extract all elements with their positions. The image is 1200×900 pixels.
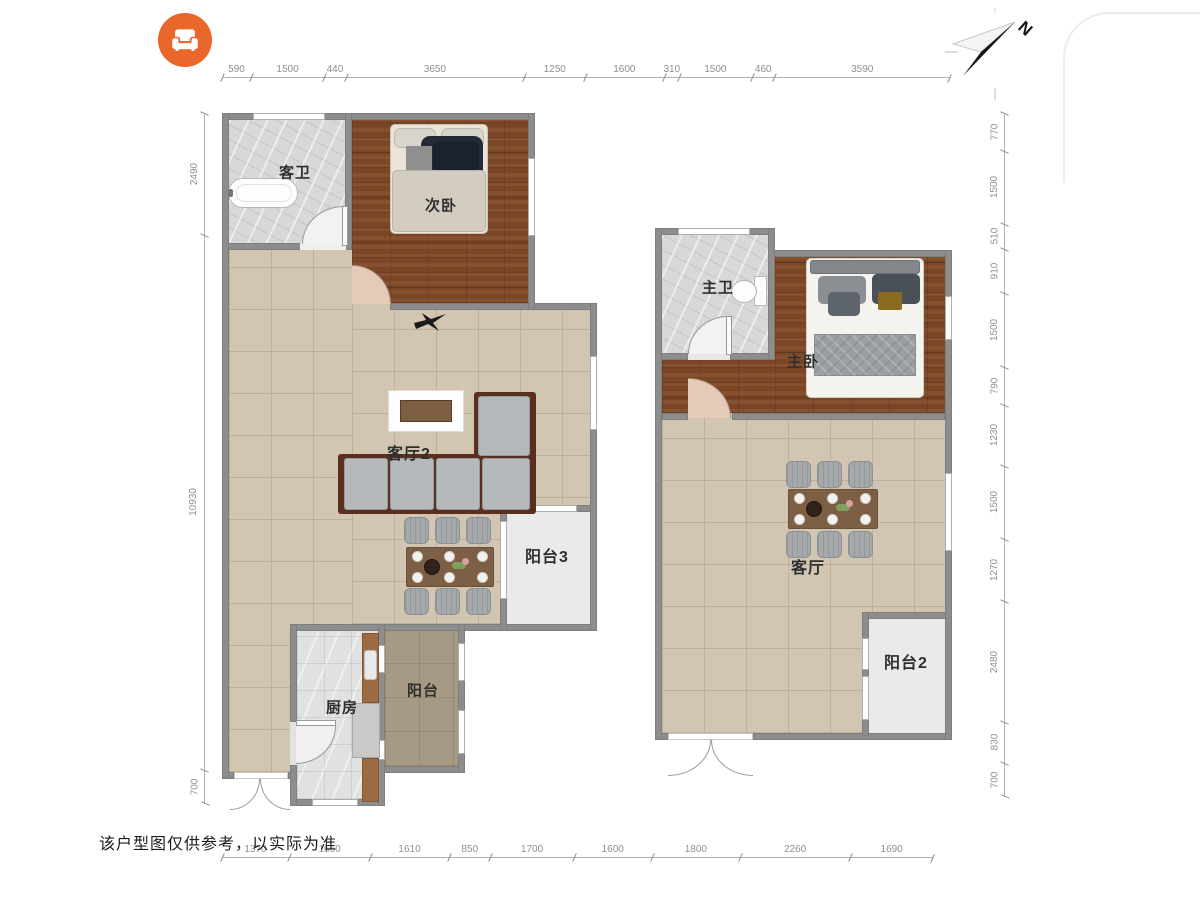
dimension-segment: 510: [990, 224, 1005, 249]
window: [528, 158, 535, 236]
plate: [444, 551, 455, 562]
bathtub-inner: [236, 184, 292, 202]
table-decor-flower: [462, 558, 469, 565]
floor-balcony2: [869, 619, 945, 733]
dimension-chain-top: 590150044036501250160031015004603590: [222, 64, 950, 78]
door-leaf: [342, 206, 348, 246]
floor-balcony3: [507, 512, 590, 624]
room-label-living2: 客厅2: [387, 440, 431, 464]
wall: [222, 113, 229, 779]
plate: [827, 493, 838, 504]
sofa-chaise-cushion: [478, 396, 530, 456]
plate: [412, 572, 423, 583]
decor-corner-frame: [1063, 12, 1200, 182]
dimension-segment: 2480: [990, 601, 1005, 722]
kitchen-sink: [364, 650, 377, 680]
svg-text:N: N: [1014, 17, 1036, 39]
entry-door-arc-right: [260, 779, 290, 810]
room-label-second-bedroom: 次卧: [425, 195, 457, 216]
window: [862, 676, 869, 720]
dimension-segment: 700: [990, 763, 1005, 797]
table-centerpiece: [806, 501, 822, 517]
room-label-living: 客厅: [791, 554, 825, 578]
clothes-pile: [828, 292, 860, 316]
door-leaf: [726, 316, 732, 355]
dimension-segment: 790: [990, 367, 1005, 406]
wall: [862, 612, 948, 619]
window: [312, 799, 358, 806]
tv: [400, 400, 452, 422]
dimension-segment: 1500: [990, 466, 1005, 539]
plate: [827, 514, 838, 525]
entry-door-arc-left: [230, 779, 260, 810]
wall: [655, 228, 662, 740]
dimension-segment: 1250: [524, 64, 585, 78]
dining-chair: [404, 517, 429, 544]
dimension-segment: 1500: [251, 64, 324, 78]
sofa-cushion: [344, 458, 388, 510]
plate: [860, 514, 871, 525]
quilt-band: [814, 334, 916, 376]
dining-chair: [848, 461, 873, 488]
sofa-cushion: [482, 458, 530, 510]
headboard: [810, 260, 920, 274]
dimension-segment: 1700: [490, 844, 573, 858]
wall: [390, 303, 597, 310]
compass-north-icon: N: [945, 8, 1045, 100]
window: [458, 643, 465, 681]
room-label-balcony3: 阳台3: [525, 543, 569, 567]
dimension-segment: 1610: [370, 844, 449, 858]
plate: [794, 514, 805, 525]
sofa-icon: [168, 23, 202, 57]
dimension-segment: 770: [990, 113, 1005, 151]
wall: [290, 624, 597, 631]
sofa-cushion: [390, 458, 434, 510]
room-label-master-bath: 主卫: [702, 277, 734, 298]
entry-door-arc-right: [711, 740, 753, 776]
door-opening: [300, 243, 346, 250]
dimension-segment: 310: [664, 64, 679, 78]
wall: [290, 624, 297, 722]
window: [862, 638, 869, 670]
basket: [878, 292, 902, 310]
dimension-segment: 1500: [990, 151, 1005, 224]
dimension-segment: 850: [449, 844, 491, 858]
bathtub-tap: [228, 189, 233, 197]
plate: [477, 572, 488, 583]
dining-chair: [435, 588, 460, 615]
entry-opening: [668, 733, 753, 740]
window: [378, 645, 385, 673]
window: [500, 521, 507, 599]
plate: [794, 493, 805, 504]
window: [678, 228, 750, 235]
cushion: [406, 146, 432, 172]
clothes-pile: [433, 141, 479, 171]
sofa-cushion: [436, 458, 480, 510]
dimension-segment: 1500: [679, 64, 752, 78]
wall: [662, 413, 688, 420]
wall: [590, 303, 597, 631]
dining-chair: [817, 461, 842, 488]
dimension-chain-left: 249010930700: [190, 113, 205, 804]
wall: [382, 766, 465, 773]
wall: [753, 733, 952, 740]
compass: N: [945, 8, 1045, 100]
dimension-segment: 1600: [574, 844, 652, 858]
dimension-segment: 910: [990, 249, 1005, 293]
kitchen-counter: [362, 758, 379, 802]
app-logo: [158, 13, 212, 67]
floorplan-canvas: N: [0, 0, 1200, 900]
dining-chair: [435, 517, 460, 544]
entry-opening: [234, 772, 288, 779]
ceiling-fan-icon: [412, 310, 448, 334]
window: [945, 296, 952, 340]
room-label-guest-bath: 客卫: [279, 162, 311, 183]
dimension-segment: 2490: [190, 113, 205, 235]
window: [253, 113, 325, 120]
dimension-segment: 1230: [990, 405, 1005, 465]
toilet-bowl: [731, 280, 757, 303]
dining-chair: [786, 461, 811, 488]
dining-chair: [466, 588, 491, 615]
dimension-segment: 3590: [774, 64, 950, 78]
disclaimer-text: 该户型图仅供参考，以实际为准: [99, 830, 337, 854]
dimension-chain-right: 7701500510910150079012301500127024808307…: [990, 113, 1005, 797]
plate: [477, 551, 488, 562]
window: [590, 356, 597, 430]
dimension-segment: 1500: [990, 293, 1005, 366]
dining-chair: [848, 531, 873, 558]
wall: [768, 228, 775, 360]
wall: [768, 250, 952, 257]
dimension-segment: 1600: [585, 64, 663, 78]
wall: [732, 413, 945, 420]
dimension-segment: 590: [222, 64, 251, 78]
dimension-segment: 1690: [850, 844, 933, 858]
wall: [290, 765, 297, 806]
room-label-master-bedroom: 主卧: [787, 351, 819, 372]
entry-door-arc-left: [668, 740, 711, 776]
dimension-segment: 700: [190, 770, 205, 804]
dimension-segment: 2260: [740, 844, 851, 858]
window: [945, 473, 952, 551]
room-label-balcony2: 阳台2: [884, 649, 928, 673]
plate: [444, 572, 455, 583]
dining-chair: [466, 517, 491, 544]
room-label-balcony: 阳台: [407, 680, 439, 701]
plate: [860, 493, 871, 504]
dimension-segment: 440: [324, 64, 346, 78]
dimension-segment: 1800: [652, 844, 740, 858]
door-opening: [688, 353, 730, 360]
dimension-segment: 3650: [346, 64, 524, 78]
window: [458, 710, 465, 754]
dimension-segment: 830: [990, 722, 1005, 763]
table-centerpiece: [424, 559, 440, 575]
dimension-segment: 10930: [190, 235, 205, 770]
dining-chair: [404, 588, 429, 615]
table-decor-flower: [846, 500, 853, 507]
dimension-segment: 460: [752, 64, 774, 78]
room-label-kitchen: 厨房: [326, 697, 358, 718]
plate: [412, 551, 423, 562]
dimension-segment: 1270: [990, 539, 1005, 601]
